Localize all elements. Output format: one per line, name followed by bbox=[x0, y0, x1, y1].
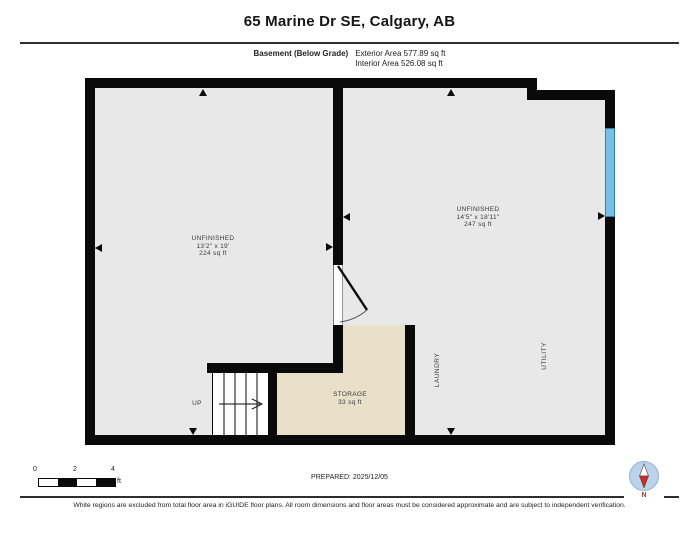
storage-fill-upper bbox=[343, 325, 405, 373]
door-opening bbox=[333, 265, 343, 325]
room-dimensions: 14'5" x 18'11" bbox=[418, 214, 538, 222]
interior-area: Interior Area 526.08 sq ft bbox=[355, 59, 445, 69]
footer-divider bbox=[20, 496, 679, 498]
wall-stair-right bbox=[268, 373, 277, 435]
room-name: UNFINISHED bbox=[418, 206, 538, 214]
room-area: 247 sq ft bbox=[418, 221, 538, 229]
wall-right-upper bbox=[605, 90, 615, 128]
compass-needle-south bbox=[640, 464, 649, 476]
area-summary: Exterior Area 577.89 sq ft Interior Area… bbox=[355, 49, 445, 69]
left-room-label: UNFINISHED 13'2" x 19' 224 sq ft bbox=[153, 235, 273, 258]
room-name: STORAGE bbox=[300, 391, 400, 399]
wall-left bbox=[85, 78, 95, 445]
laundry-label: LAUNDRY bbox=[434, 340, 442, 400]
page-title: 65 Marine Dr SE, Calgary, AB bbox=[0, 13, 699, 30]
compass bbox=[629, 461, 659, 491]
room-area: 33 sq ft bbox=[300, 399, 400, 407]
header-divider bbox=[20, 42, 679, 44]
plan-meta: Basement (Below Grade) Exterior Area 577… bbox=[0, 49, 699, 69]
storage-label: STORAGE 33 sq ft bbox=[300, 391, 400, 406]
compass-needle-icon bbox=[630, 462, 658, 490]
window bbox=[605, 128, 615, 217]
wall-bottom bbox=[85, 435, 615, 445]
room-dimensions: 13'2" x 19' bbox=[153, 243, 273, 251]
scale-tick-4: 4 bbox=[108, 466, 118, 473]
disclaimer-text: White regions are excluded from total fl… bbox=[0, 502, 699, 509]
scale-tick-2: 2 bbox=[70, 466, 80, 473]
stairwell bbox=[212, 373, 268, 435]
right-room-label: UNFINISHED 14'5" x 18'11" 247 sq ft bbox=[418, 206, 538, 229]
wall-divider-upper bbox=[333, 88, 343, 265]
wall-storage-right bbox=[405, 325, 415, 435]
wall-top-right bbox=[527, 90, 615, 100]
wall-right-lower bbox=[605, 217, 615, 445]
room-name: UNFINISHED bbox=[153, 235, 273, 243]
utility-label: UTILITY bbox=[541, 326, 549, 386]
stairs-up-label: UP bbox=[188, 400, 206, 407]
floorplan-page: 65 Marine Dr SE, Calgary, AB Basement (B… bbox=[0, 0, 699, 540]
floor-label: Basement (Below Grade) bbox=[254, 49, 349, 58]
exterior-area: Exterior Area 577.89 sq ft bbox=[355, 49, 445, 59]
compass-north-label: N bbox=[629, 492, 659, 499]
prepared-date: PREPARED: 2025/12/05 bbox=[0, 474, 699, 481]
compass-needle-north bbox=[640, 476, 649, 488]
wall-stair-top bbox=[207, 363, 343, 373]
wall-top-left bbox=[85, 78, 537, 88]
scale-tick-0: 0 bbox=[30, 466, 40, 473]
room-area: 224 sq ft bbox=[153, 250, 273, 258]
